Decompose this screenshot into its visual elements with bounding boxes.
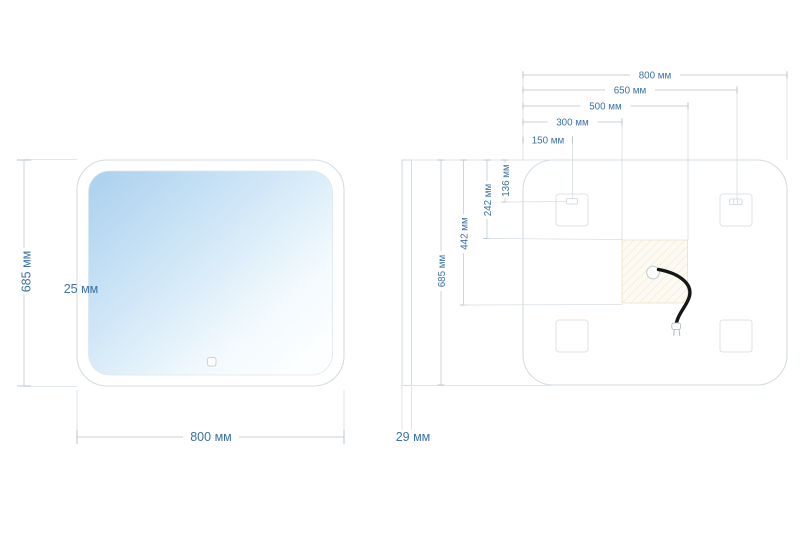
side-depth-dimension: 29 мм: [396, 387, 431, 444]
side-depth-label: 29 мм: [396, 430, 431, 444]
keyhole-slot-top-right: [730, 199, 743, 205]
back-800-label: 800 мм: [639, 70, 672, 81]
keyhole-slot-top-left: [567, 199, 578, 205]
back-650-label: 650 мм: [614, 85, 647, 96]
front-view: 685 мм 25 мм 800 мм: [17, 160, 344, 444]
front-height-label: 685 мм: [20, 251, 34, 293]
back-view: 800 мм 650 мм 500 мм 300 мм: [412, 69, 788, 386]
back-136-label: 136 мм: [501, 164, 512, 197]
front-height-dimension: 685 мм: [17, 160, 77, 387]
back-150-label: 150 мм: [532, 135, 565, 146]
back-242-label: 242 мм: [483, 183, 494, 216]
side-view: 29 мм: [396, 160, 431, 444]
mirror-glass: [89, 171, 333, 375]
back-dimension-300: 300 мм: [523, 116, 622, 129]
touch-sensor-icon: [208, 358, 217, 367]
mirror-side-outline: [402, 160, 412, 386]
back-300-label: 300 мм: [556, 117, 589, 128]
back-442-label: 442 мм: [460, 217, 471, 250]
back-500-label: 500 мм: [589, 101, 622, 112]
technical-drawing: 685 мм 25 мм 800 мм 29 мм: [0, 0, 800, 533]
front-width-label: 800 мм: [190, 430, 232, 444]
back-dimension-685: 685 мм: [435, 160, 448, 385]
mounting-bracket-bottom-right: [720, 320, 752, 352]
back-685-label: 685 мм: [437, 254, 448, 287]
back-dimension-800: 800 мм: [523, 69, 787, 82]
mounting-bracket-bottom-left: [556, 320, 588, 352]
front-width-dimension: 800 мм: [77, 390, 344, 444]
front-edge-inset-label: 25 мм: [64, 282, 99, 296]
back-dimension-500: 500 мм: [523, 100, 688, 113]
drawing-canvas: 685 мм 25 мм 800 мм 29 мм: [0, 0, 800, 533]
cable-grommet: [647, 266, 660, 279]
back-dimension-150: 150 мм: [523, 134, 573, 147]
back-dimension-650: 650 мм: [523, 84, 737, 97]
